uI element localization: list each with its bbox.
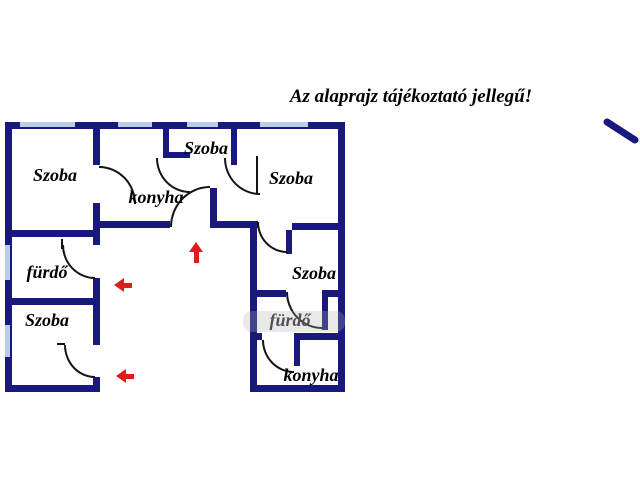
room-label-szoba-top-left: Szoba <box>33 166 77 184</box>
window <box>118 122 152 127</box>
door-arc <box>224 158 260 195</box>
wall <box>300 333 345 340</box>
wall <box>163 129 169 152</box>
room-label-szoba-bottom-left: Szoba <box>25 311 69 329</box>
wall <box>294 333 300 366</box>
wall <box>292 223 345 230</box>
window <box>260 122 308 127</box>
window <box>20 122 75 127</box>
door-leaf <box>57 343 65 345</box>
window <box>5 245 10 280</box>
wall <box>93 221 170 228</box>
floorplan: Az alaprajz tájékoztató jellegű! <box>0 0 640 480</box>
window <box>187 122 218 127</box>
door-leaf <box>256 156 258 194</box>
room-label-szoba-top-right: Szoba <box>269 169 313 187</box>
plan-disclaimer-title: Az alaprajz tájékoztató jellegű! <box>290 86 532 108</box>
door-arc <box>64 345 95 378</box>
wall <box>5 385 99 392</box>
door-arc <box>257 222 287 253</box>
wall <box>93 203 100 245</box>
wall <box>93 129 100 165</box>
room-label-szoba-top-middle: Szoba <box>184 139 228 157</box>
wall <box>93 278 100 345</box>
wall <box>328 290 345 297</box>
wall <box>338 122 345 392</box>
wall <box>5 230 99 237</box>
room-label-furdo-right-column: fürdő <box>269 311 310 329</box>
window <box>5 325 10 357</box>
wall <box>250 385 345 392</box>
room-label-furdo-left: fürdő <box>26 263 67 281</box>
wall <box>5 298 99 305</box>
room-label-szoba-right-column: Szoba <box>292 264 336 282</box>
wall <box>250 221 257 392</box>
room-label-konyha-right-column: konyha <box>283 366 338 384</box>
door-leaf-wall <box>210 188 217 228</box>
door-leaf <box>61 239 63 249</box>
room-label-konyha-top: konyha <box>128 188 183 206</box>
wall <box>93 377 100 392</box>
diagonal-mark <box>598 116 640 144</box>
